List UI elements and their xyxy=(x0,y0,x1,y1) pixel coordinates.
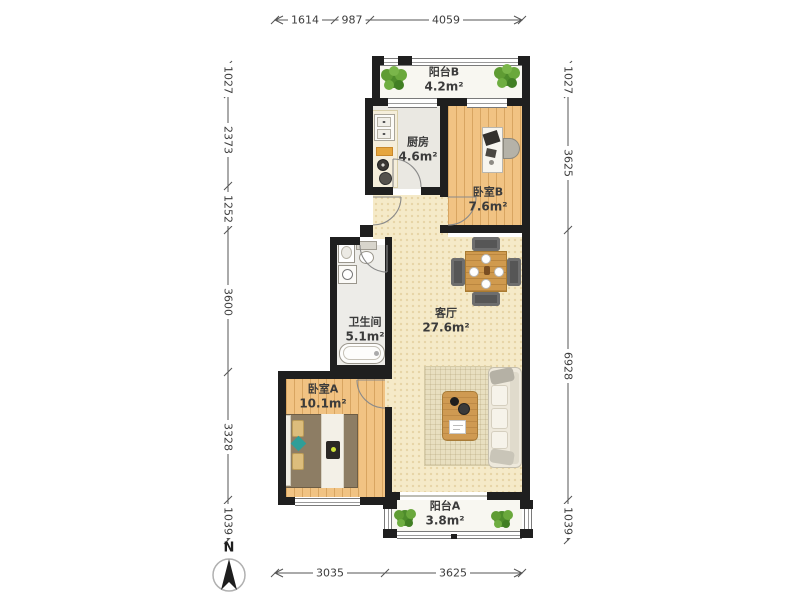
dim-label: 1039 xyxy=(562,504,575,538)
dim-label: 3625 xyxy=(562,146,575,180)
laptop-light xyxy=(331,447,336,452)
kitchen-window xyxy=(388,98,437,108)
wall xyxy=(385,237,392,372)
plate xyxy=(494,267,504,277)
room-area: 10.1m² xyxy=(299,396,346,411)
dining-chair-bottom xyxy=(472,292,500,306)
dim-label: 3328 xyxy=(222,420,235,454)
room-label-bathroom: 卫生间 5.1m² xyxy=(345,316,384,345)
dining-chair-left xyxy=(451,258,465,286)
wall xyxy=(487,492,530,500)
room-area: 3.8m² xyxy=(425,513,464,528)
room-name: 厨房 xyxy=(407,136,429,150)
dim-label: 6928 xyxy=(562,349,575,383)
bedroom-a-window xyxy=(295,498,360,506)
room-name: 卫生间 xyxy=(349,316,382,330)
toilet-bowl xyxy=(359,251,374,264)
room-name: 阳台B xyxy=(429,66,459,80)
bathtub-drain xyxy=(374,351,379,356)
room-area: 4.2m² xyxy=(424,79,463,94)
pot xyxy=(379,172,392,185)
dim-label: 1614 xyxy=(288,14,322,27)
coffee-table-note xyxy=(449,420,466,434)
cutting-board xyxy=(376,147,393,156)
room-label-balcony-a: 阳台A 3.8m² xyxy=(425,500,464,529)
room-label-living-room: 客厅 27.6m² xyxy=(422,307,469,336)
dim-label: 1027 xyxy=(562,63,575,97)
wall xyxy=(385,492,400,500)
kettle xyxy=(377,159,389,171)
balcony-a-side-window xyxy=(524,508,532,529)
wall-post xyxy=(398,56,412,65)
wall-post xyxy=(451,534,457,539)
dim-label: 3625 xyxy=(436,567,470,580)
room-label-bedroom-b: 卧室B 7.6m² xyxy=(468,186,507,215)
dim-label: 987 xyxy=(339,14,366,27)
wall-post xyxy=(518,56,530,65)
dim-label: 2373 xyxy=(222,123,235,157)
wall xyxy=(385,407,392,497)
bedroom-b-window xyxy=(467,98,507,108)
sink-basin xyxy=(377,117,391,127)
sink-basin xyxy=(377,129,391,139)
dim-label: 1252 xyxy=(222,192,235,226)
sofa-cushion xyxy=(491,385,508,406)
wall xyxy=(440,98,448,197)
sofa-cushion xyxy=(491,408,508,429)
dim-label: 1039 xyxy=(222,504,235,538)
wall-post xyxy=(383,500,397,509)
wall xyxy=(330,237,337,372)
compass-icon xyxy=(213,559,245,591)
dim-label: 4059 xyxy=(429,14,463,27)
wall-post xyxy=(383,529,397,538)
room-label-balcony-b: 阳台B 4.2m² xyxy=(424,66,463,95)
plate xyxy=(481,279,491,289)
wall xyxy=(360,225,373,237)
room-area: 27.6m² xyxy=(422,320,469,335)
balcony-a-window xyxy=(397,531,522,539)
bed-pillow xyxy=(292,453,304,470)
room-label-bedroom-a: 卧室A 10.1m² xyxy=(299,383,346,412)
room-name: 卧室B xyxy=(473,186,503,200)
wall xyxy=(278,497,295,505)
table-centerpiece xyxy=(484,266,490,275)
dining-chair-right xyxy=(507,258,521,286)
dim-label: 1027 xyxy=(222,63,235,97)
sink-bowl xyxy=(341,246,352,259)
wall-post xyxy=(372,56,384,65)
washer-drum xyxy=(342,269,353,280)
desk-item xyxy=(489,160,494,165)
wall xyxy=(278,371,286,505)
room-label-kitchen: 厨房 4.6m² xyxy=(398,136,437,165)
floor-plan: 1614 987 4059 3035 3625 1027 2373 1252 3… xyxy=(0,0,800,600)
coffee-table-item xyxy=(458,403,470,415)
wall xyxy=(278,371,392,379)
room-area: 4.6m² xyxy=(398,149,437,164)
room-area: 5.1m² xyxy=(345,329,384,344)
wall-post xyxy=(520,529,533,538)
wall xyxy=(365,98,373,195)
room-name: 卧室A xyxy=(308,383,339,397)
floor-doorway-a xyxy=(385,379,392,408)
plate xyxy=(469,267,479,277)
dining-chair-top xyxy=(472,237,500,251)
wall-post xyxy=(520,500,533,509)
balcony-a-side-window xyxy=(384,509,392,530)
sofa-cushion xyxy=(491,431,508,449)
dim-label: 3600 xyxy=(222,285,235,319)
dim-label: 3035 xyxy=(313,567,347,580)
room-name: 客厅 xyxy=(435,307,457,321)
wall xyxy=(440,225,530,233)
wall xyxy=(365,187,393,195)
floor-hallway xyxy=(373,195,448,239)
room-name: 阳台A xyxy=(430,500,461,514)
north-label: N xyxy=(224,541,235,556)
room-area: 7.6m² xyxy=(468,199,507,214)
balcony-a-threshold xyxy=(400,495,487,497)
plate xyxy=(481,254,491,264)
wall xyxy=(522,98,530,502)
coffee-table-item xyxy=(450,397,459,406)
sofa-back xyxy=(510,372,519,464)
